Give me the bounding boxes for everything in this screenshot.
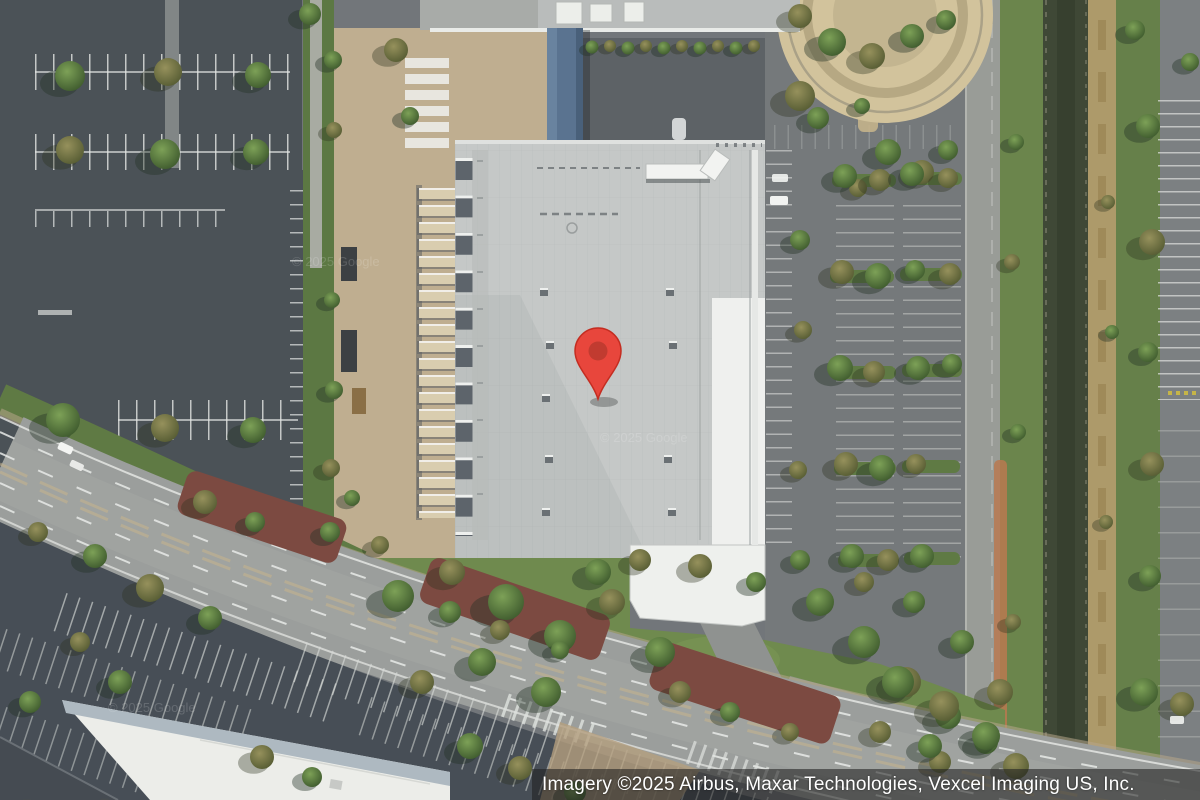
main-building bbox=[455, 140, 765, 626]
google-logo-text: Google bbox=[14, 795, 128, 800]
marker-dot bbox=[589, 342, 608, 361]
svg-text:© 2025 Google: © 2025 Google bbox=[108, 700, 196, 715]
attribution-bar: Imagery ©2025 Airbus, Maxar Technologies… bbox=[532, 769, 1200, 800]
map-viewport[interactable]: © 2025 Google © 2025 Google © 2025 Googl… bbox=[0, 0, 1200, 800]
north-building bbox=[420, 0, 800, 32]
attribution-text: Imagery ©2025 Airbus, Maxar Technologies… bbox=[542, 774, 1135, 796]
satellite-imagery: © 2025 Google © 2025 Google © 2025 Googl… bbox=[0, 0, 1200, 800]
creek-corridor bbox=[958, 0, 1200, 800]
svg-text:© 2025 Google: © 2025 Google bbox=[600, 430, 688, 445]
svg-text:© 2025 Google: © 2025 Google bbox=[292, 254, 380, 269]
